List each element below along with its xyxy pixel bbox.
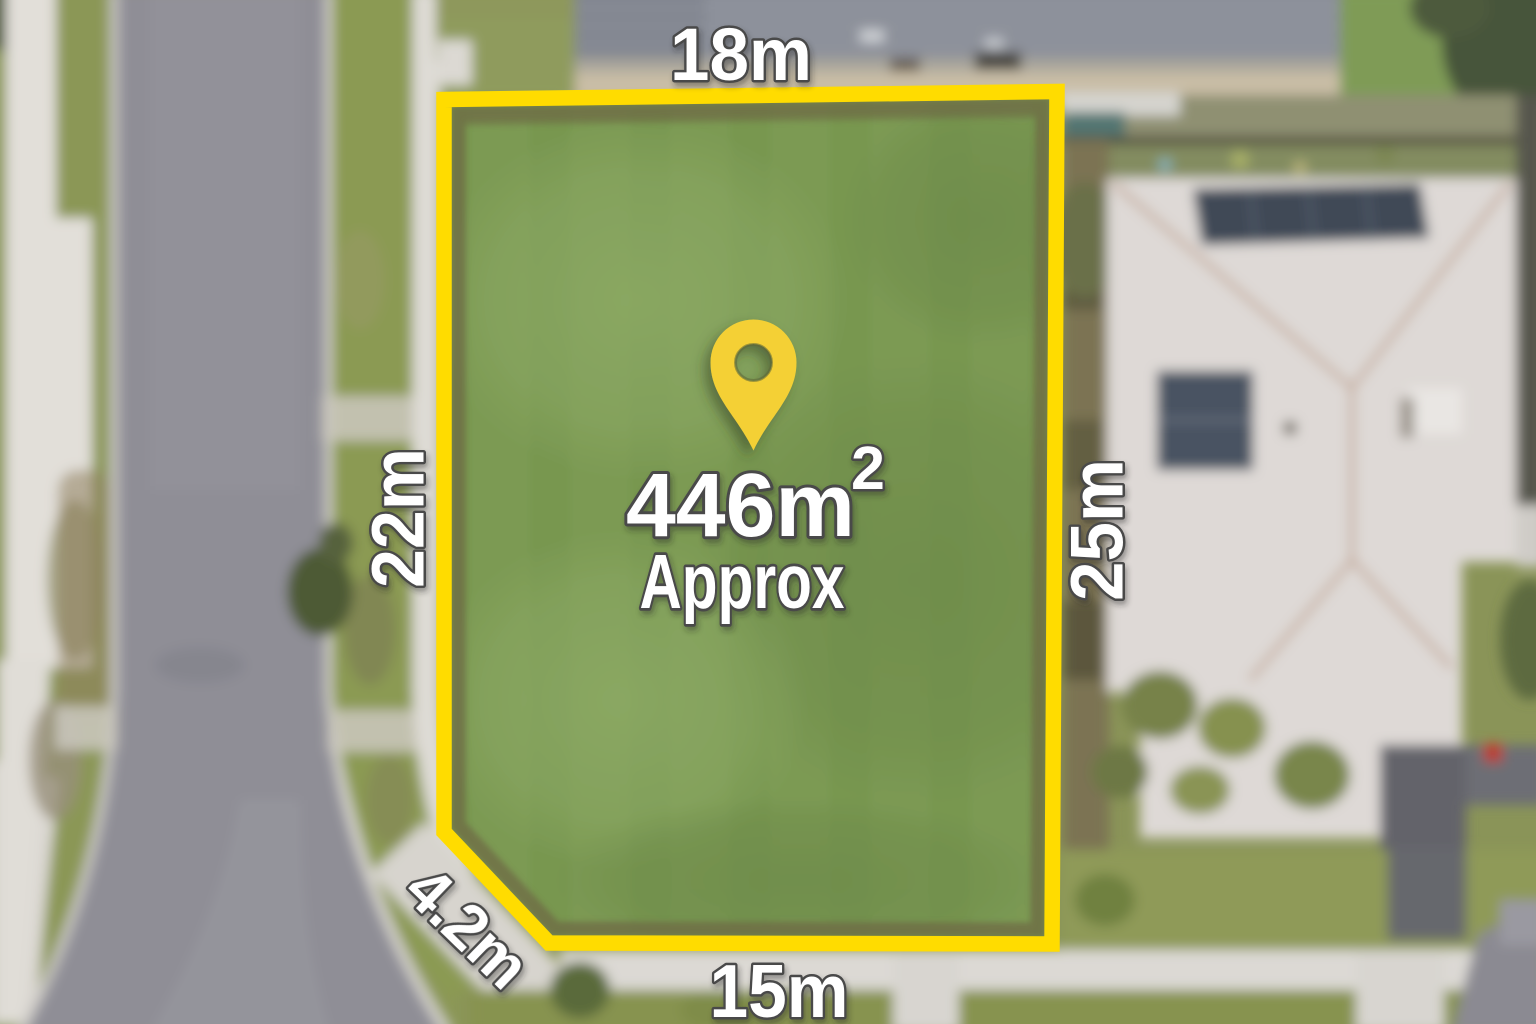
svg-text:18m: 18m	[670, 13, 812, 96]
svg-text:Approx: Approx	[640, 539, 845, 625]
svg-text:15m: 15m	[710, 949, 849, 1024]
svg-text:2: 2	[851, 434, 885, 502]
svg-text:22m: 22m	[357, 448, 440, 588]
svg-text:25m: 25m	[1056, 459, 1139, 601]
